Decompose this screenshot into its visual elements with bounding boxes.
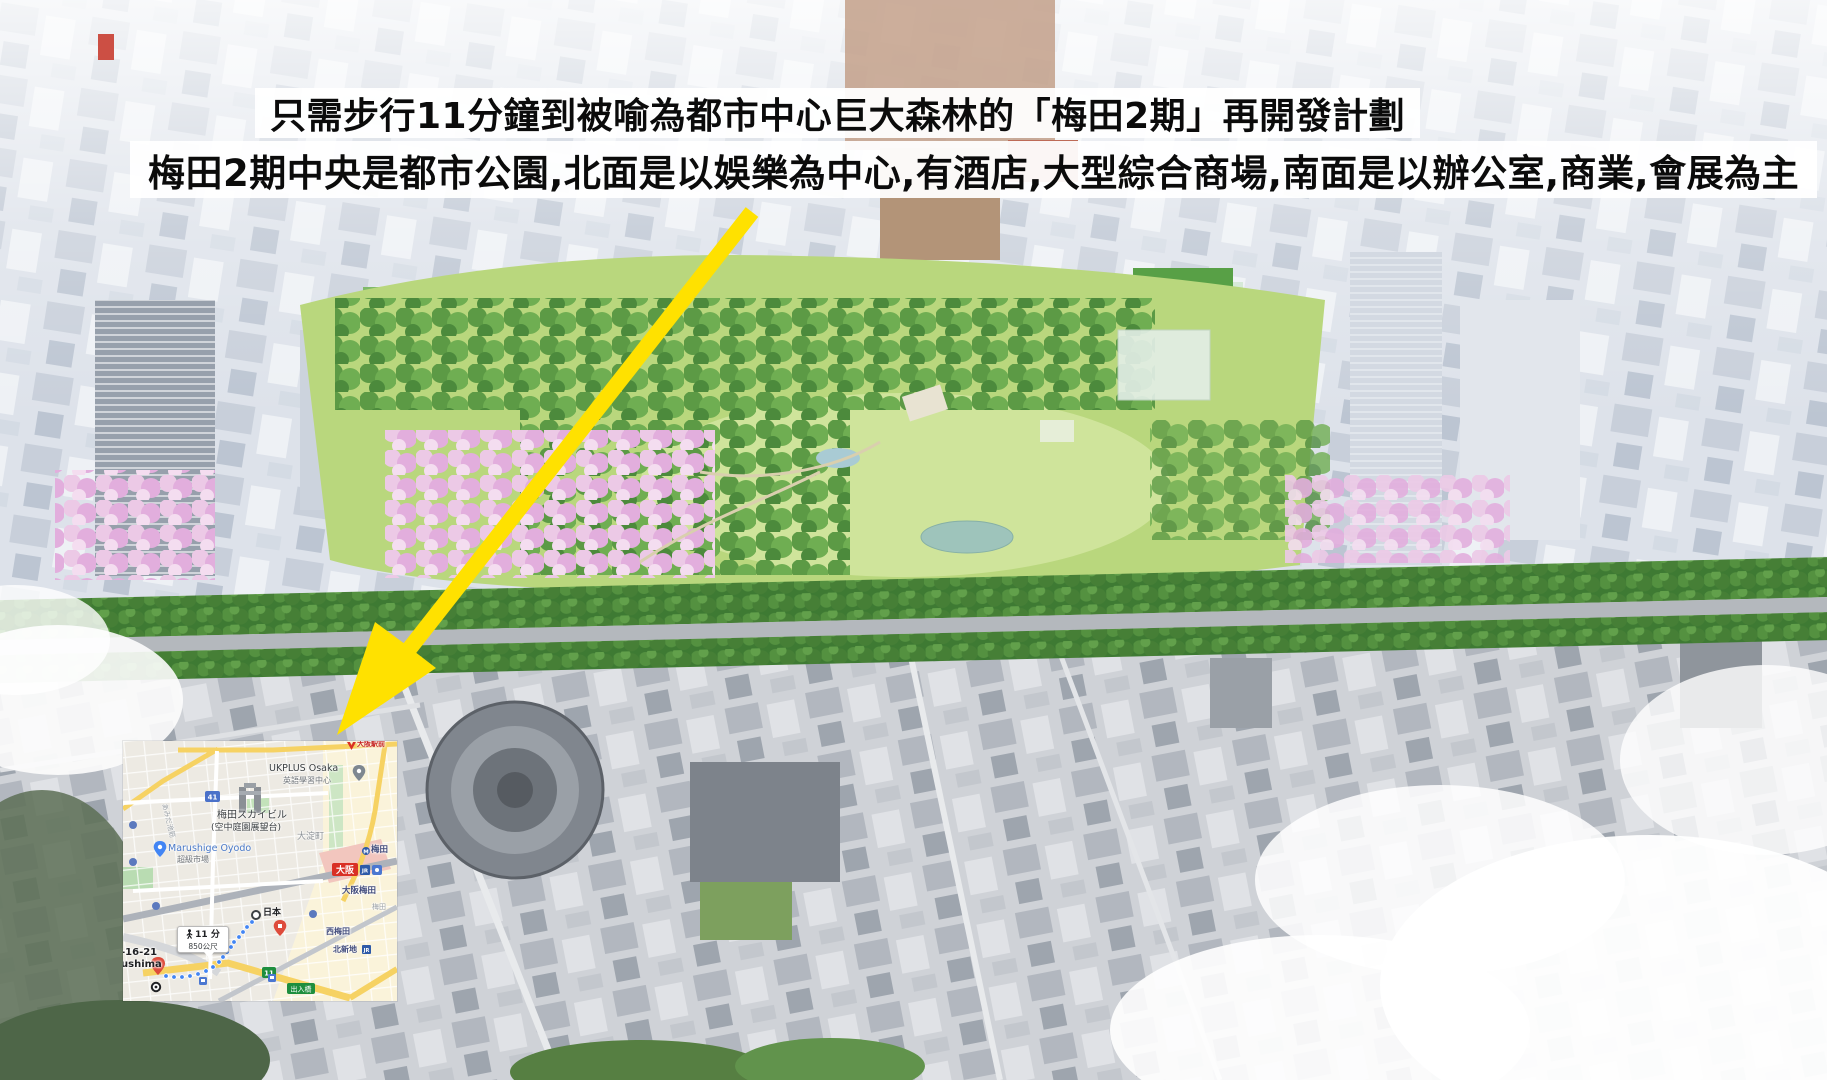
walk-distance: 850公尺 (188, 941, 217, 952)
annotated-aerial-image: 只需步行11分鐘到被喻為都市中心巨大森林的「梅田2期」再開發計劃 梅田2期中央是… (0, 0, 1827, 1080)
svg-text:出入橋: 出入橋 (291, 985, 312, 994)
svg-text:JR: JR (363, 948, 370, 954)
osaka-umeda-label: 大阪梅田 (342, 887, 376, 896)
headline-banner: 只需步行11分鐘到被喻為都市中心巨大森林的「梅田2期」再開發計劃 (255, 88, 1420, 138)
jr-logo-icon: JR (361, 869, 369, 875)
origin-address-line1: -16-21 (123, 948, 157, 958)
google-map-inset: 41 11 出入橋 大阪 JR JR (123, 741, 397, 1001)
sky-building-sublabel: (空中庭園展望台) (211, 824, 281, 833)
walking-time-callout: 11 分 850公尺 (177, 926, 229, 953)
route-shield-41: 41 (205, 791, 220, 802)
kitashinchi-label: 北新地 (333, 946, 357, 954)
marushige-sublabel: 超級市場 (177, 856, 209, 864)
marushige-label: Marushige Oyodo (168, 844, 251, 854)
svg-text:M: M (363, 850, 368, 856)
oyodo-district-label: 大淀町 (297, 833, 324, 842)
ukplus-label: UKPLUS Osaka (269, 764, 338, 774)
nihon-waypoint-label: 日本 (263, 909, 281, 918)
deiribashi-exit-box: 出入橋 (287, 983, 315, 994)
umeda-small-label: 梅田 (372, 904, 386, 911)
origin-target-icon (152, 983, 160, 991)
walking-person-icon (186, 929, 193, 939)
route-waypoint-circle (252, 911, 260, 919)
kitashinchi-jr-icon: JR (362, 945, 371, 954)
map-graphics: 41 11 出入橋 大阪 JR JR (123, 741, 397, 1001)
svg-text:大阪: 大阪 (336, 864, 355, 876)
corner-red-label: 大阪駅前 (357, 741, 385, 748)
sky-building-label: 梅田スカイビル (217, 811, 287, 821)
nishi-umeda-label: 西梅田 (326, 928, 350, 936)
umeda-metro-label: 梅田 (371, 846, 388, 855)
origin-address-line2: ushima (123, 960, 162, 970)
walk-duration: 11 分 (195, 927, 220, 940)
ukplus-sublabel: 英語學習中心 (283, 777, 331, 785)
subheadline-banner: 梅田2期中央是都市公園,北面是以娛樂為中心,有酒店,大型綜合商場,南面是以辦公室… (130, 141, 1817, 198)
svg-text:41: 41 (208, 794, 218, 802)
